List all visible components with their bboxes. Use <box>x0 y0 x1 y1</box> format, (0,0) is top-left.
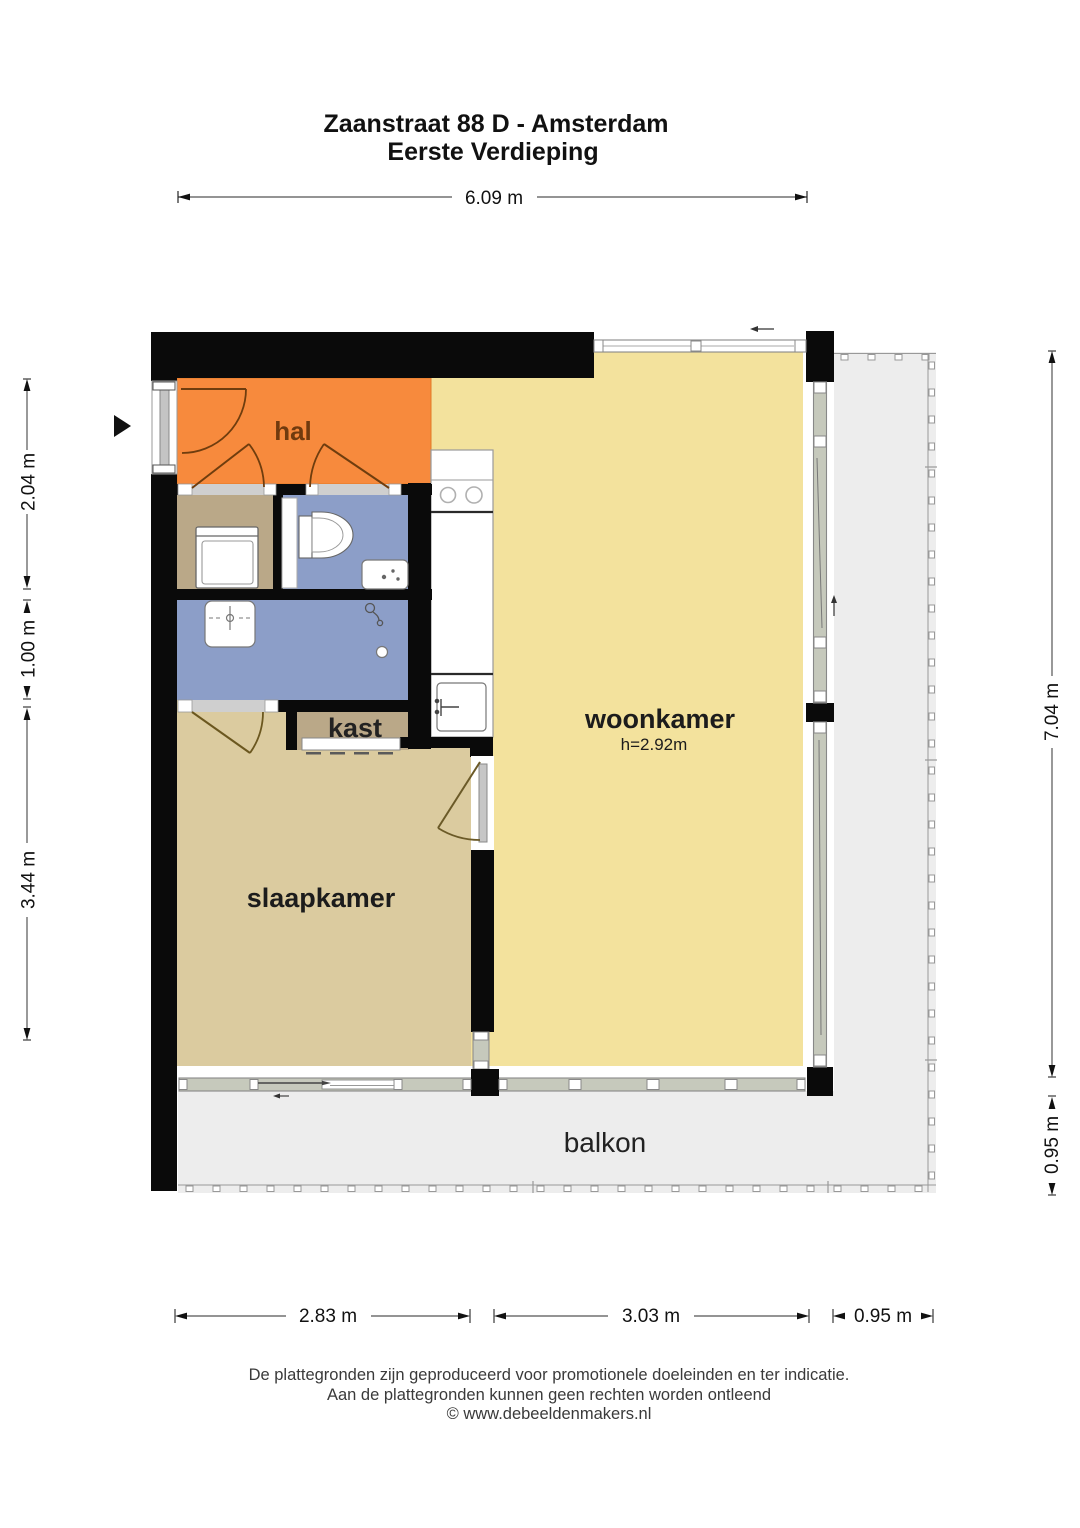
svg-text:1.00 m: 1.00 m <box>19 620 40 678</box>
svg-text:balkon: balkon <box>564 1127 647 1158</box>
svg-text:3.44 m: 3.44 m <box>19 851 40 909</box>
svg-text:0.95 m: 0.95 m <box>854 1306 912 1327</box>
svg-text:0.95 m: 0.95 m <box>1042 1116 1063 1174</box>
svg-text:Zaanstraat 88 D - Amsterdam: Zaanstraat 88 D - Amsterdam <box>323 110 668 138</box>
svg-text:Aan de plattegronden kunnen ge: Aan de plattegronden kunnen geen rechten… <box>327 1386 771 1404</box>
svg-text:kast: kast <box>328 713 382 743</box>
svg-text:De plattegronden zijn geproduc: De plattegronden zijn geproduceerd voor … <box>249 1366 850 1384</box>
svg-text:2.83 m: 2.83 m <box>299 1306 357 1327</box>
svg-text:3.03 m: 3.03 m <box>622 1306 680 1327</box>
svg-text:h=2.92m: h=2.92m <box>621 735 688 754</box>
svg-text:hal: hal <box>274 416 312 446</box>
svg-text:2.04 m: 2.04 m <box>19 453 40 511</box>
svg-text:© www.debeeldenmakers.nl: © www.debeeldenmakers.nl <box>447 1405 652 1423</box>
svg-text:slaapkamer: slaapkamer <box>247 883 396 913</box>
svg-text:7.04 m: 7.04 m <box>1042 683 1063 741</box>
svg-text:woonkamer: woonkamer <box>584 704 736 734</box>
svg-text:Eerste Verdieping: Eerste Verdieping <box>387 138 598 166</box>
svg-text:6.09 m: 6.09 m <box>465 188 523 209</box>
